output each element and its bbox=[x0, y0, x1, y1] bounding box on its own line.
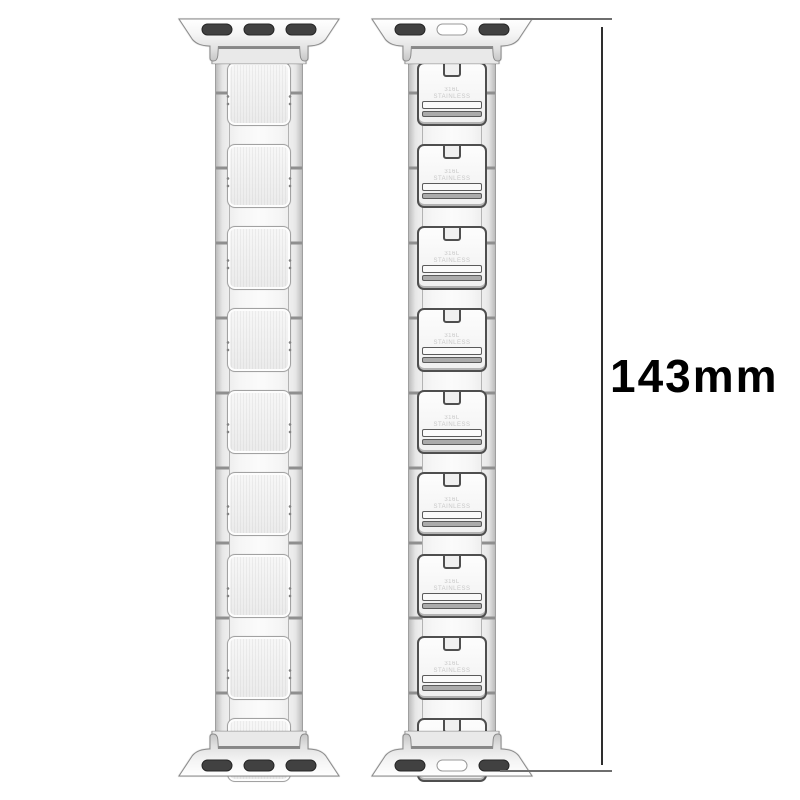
clasp-tab bbox=[443, 308, 461, 323]
hinge-pins-left bbox=[226, 504, 230, 517]
engraved-text: 316L STAINLESS bbox=[419, 661, 485, 675]
link-plate bbox=[227, 144, 291, 208]
engraved-line-2: STAINLESS bbox=[419, 668, 485, 675]
hinge-pins-right bbox=[288, 668, 292, 681]
link-clasp-back: 316L STAINLESS bbox=[417, 472, 487, 536]
band-link bbox=[216, 308, 302, 383]
clasp-bar-lower bbox=[422, 439, 482, 445]
band-link-back: 316L STAINLESS bbox=[409, 472, 495, 547]
engraved-text: 316L STAINLESS bbox=[419, 579, 485, 593]
link-clasp-back: 316L STAINLESS bbox=[417, 636, 487, 700]
engraved-line-1: 316L bbox=[419, 415, 485, 422]
band-link bbox=[216, 144, 302, 219]
clasp-bar-lower bbox=[422, 603, 482, 609]
clasp-tab bbox=[443, 390, 461, 405]
band-link-back: 316L STAINLESS bbox=[409, 308, 495, 383]
band-strip: 316L STAINLESS 316L STAINLESS 316L STAIN… bbox=[408, 55, 496, 738]
hinge-pins-right bbox=[288, 586, 292, 599]
link-clasp-back: 316L STAINLESS bbox=[417, 308, 487, 372]
clasp-bar-upper bbox=[422, 593, 482, 601]
clasp-bar-upper bbox=[422, 183, 482, 191]
dimension-line bbox=[601, 27, 603, 765]
adapter-slot bbox=[244, 760, 274, 771]
band-strip bbox=[215, 55, 303, 738]
adapter-slot bbox=[286, 24, 316, 35]
clasp-bar-upper bbox=[422, 265, 482, 273]
clasp-tab bbox=[443, 62, 461, 77]
hinge-pins-right bbox=[288, 94, 292, 107]
engraved-text: 316L STAINLESS bbox=[419, 87, 485, 101]
clasp-tab bbox=[443, 472, 461, 487]
hinge-pins-left bbox=[226, 258, 230, 271]
clasp-bar-upper bbox=[422, 429, 482, 437]
engraved-line-1: 316L bbox=[419, 497, 485, 504]
adapter-slot bbox=[202, 760, 232, 771]
band-link bbox=[216, 472, 302, 547]
link-clasp-back: 316L STAINLESS bbox=[417, 226, 487, 290]
clasp-bar-lower bbox=[422, 685, 482, 691]
link-plate bbox=[227, 636, 291, 700]
hinge-pins-left bbox=[226, 340, 230, 353]
adapter-slot bbox=[202, 24, 232, 35]
hinge-pins-right bbox=[288, 422, 292, 435]
band-link bbox=[216, 636, 302, 711]
engraved-line-1: 316L bbox=[419, 333, 485, 340]
watchband-front-view bbox=[215, 18, 303, 777]
clasp-bar-lower bbox=[422, 357, 482, 363]
hinge-pins-right bbox=[288, 504, 292, 517]
clasp-bar-lower bbox=[422, 111, 482, 117]
engraved-text: 316L STAINLESS bbox=[419, 251, 485, 265]
link-plate bbox=[227, 308, 291, 372]
band-link-back: 316L STAINLESS bbox=[409, 554, 495, 629]
clasp-tab bbox=[443, 554, 461, 569]
front-links bbox=[216, 55, 302, 738]
clasp-bar-upper bbox=[422, 101, 482, 109]
clasp-bar-upper bbox=[422, 511, 482, 519]
engraved-text: 316L STAINLESS bbox=[419, 497, 485, 511]
hinge-pins-right bbox=[288, 258, 292, 271]
hinge-pins-right bbox=[288, 176, 292, 189]
lug-adapter-top bbox=[370, 18, 534, 64]
band-link-back: 316L STAINLESS bbox=[409, 144, 495, 219]
clasp-bar-lower bbox=[422, 521, 482, 527]
spring-bar-button bbox=[437, 760, 467, 771]
band-link-back: 316L STAINLESS bbox=[409, 636, 495, 711]
link-plate bbox=[227, 62, 291, 126]
engraved-text: 316L STAINLESS bbox=[419, 415, 485, 429]
lug-adapter-top bbox=[177, 18, 341, 64]
dimension-extension-bottom bbox=[500, 770, 612, 772]
engraved-line-1: 316L bbox=[419, 169, 485, 176]
engraved-line-1: 316L bbox=[419, 579, 485, 586]
spring-bar-button bbox=[437, 24, 467, 35]
link-plate bbox=[227, 226, 291, 290]
clasp-bar-upper bbox=[422, 675, 482, 683]
link-plate bbox=[227, 554, 291, 618]
engraved-line-1: 316L bbox=[419, 87, 485, 94]
hinge-pins-right bbox=[288, 340, 292, 353]
engraved-line-2: STAINLESS bbox=[419, 94, 485, 101]
band-link-back: 316L STAINLESS bbox=[409, 226, 495, 301]
clasp-tab bbox=[443, 144, 461, 159]
clasp-tab bbox=[443, 226, 461, 241]
engraved-text: 316L STAINLESS bbox=[419, 169, 485, 183]
product-photo: 316L STAINLESS 316L STAINLESS 316L STAIN… bbox=[0, 0, 800, 800]
link-clasp-back: 316L STAINLESS bbox=[417, 554, 487, 618]
band-link bbox=[216, 226, 302, 301]
clasp-bar-upper bbox=[422, 347, 482, 355]
engraved-line-2: STAINLESS bbox=[419, 504, 485, 511]
length-label: 143mm bbox=[610, 349, 779, 403]
hinge-pins-left bbox=[226, 422, 230, 435]
dimension-extension-top bbox=[500, 18, 612, 20]
back-links: 316L STAINLESS 316L STAINLESS 316L STAIN… bbox=[409, 55, 495, 738]
hinge-pins-left bbox=[226, 176, 230, 189]
band-link-back: 316L STAINLESS bbox=[409, 62, 495, 137]
engraved-text: 316L STAINLESS bbox=[419, 333, 485, 347]
engraved-line-2: STAINLESS bbox=[419, 586, 485, 593]
hinge-pins-left bbox=[226, 668, 230, 681]
clasp-bar-lower bbox=[422, 275, 482, 281]
engraved-line-2: STAINLESS bbox=[419, 422, 485, 429]
lug-adapter-bottom bbox=[177, 731, 341, 777]
watchband-back-view: 316L STAINLESS 316L STAINLESS 316L STAIN… bbox=[408, 18, 496, 777]
band-link-back: 316L STAINLESS bbox=[409, 390, 495, 465]
hinge-pins-left bbox=[226, 586, 230, 599]
clasp-tab bbox=[443, 636, 461, 651]
engraved-line-2: STAINLESS bbox=[419, 258, 485, 265]
engraved-line-1: 316L bbox=[419, 661, 485, 668]
adapter-slot bbox=[395, 24, 425, 35]
link-plate bbox=[227, 472, 291, 536]
engraved-line-1: 316L bbox=[419, 251, 485, 258]
link-plate bbox=[227, 390, 291, 454]
adapter-slot bbox=[479, 24, 509, 35]
clasp-bar-lower bbox=[422, 193, 482, 199]
band-link bbox=[216, 554, 302, 629]
link-clasp-back: 316L STAINLESS bbox=[417, 144, 487, 208]
adapter-slot bbox=[286, 760, 316, 771]
link-clasp-back: 316L STAINLESS bbox=[417, 390, 487, 454]
engraved-line-2: STAINLESS bbox=[419, 340, 485, 347]
adapter-slot bbox=[395, 760, 425, 771]
band-link bbox=[216, 390, 302, 465]
engraved-line-2: STAINLESS bbox=[419, 176, 485, 183]
link-clasp-back: 316L STAINLESS bbox=[417, 62, 487, 126]
hinge-pins-left bbox=[226, 94, 230, 107]
adapter-slot bbox=[244, 24, 274, 35]
band-link bbox=[216, 62, 302, 137]
